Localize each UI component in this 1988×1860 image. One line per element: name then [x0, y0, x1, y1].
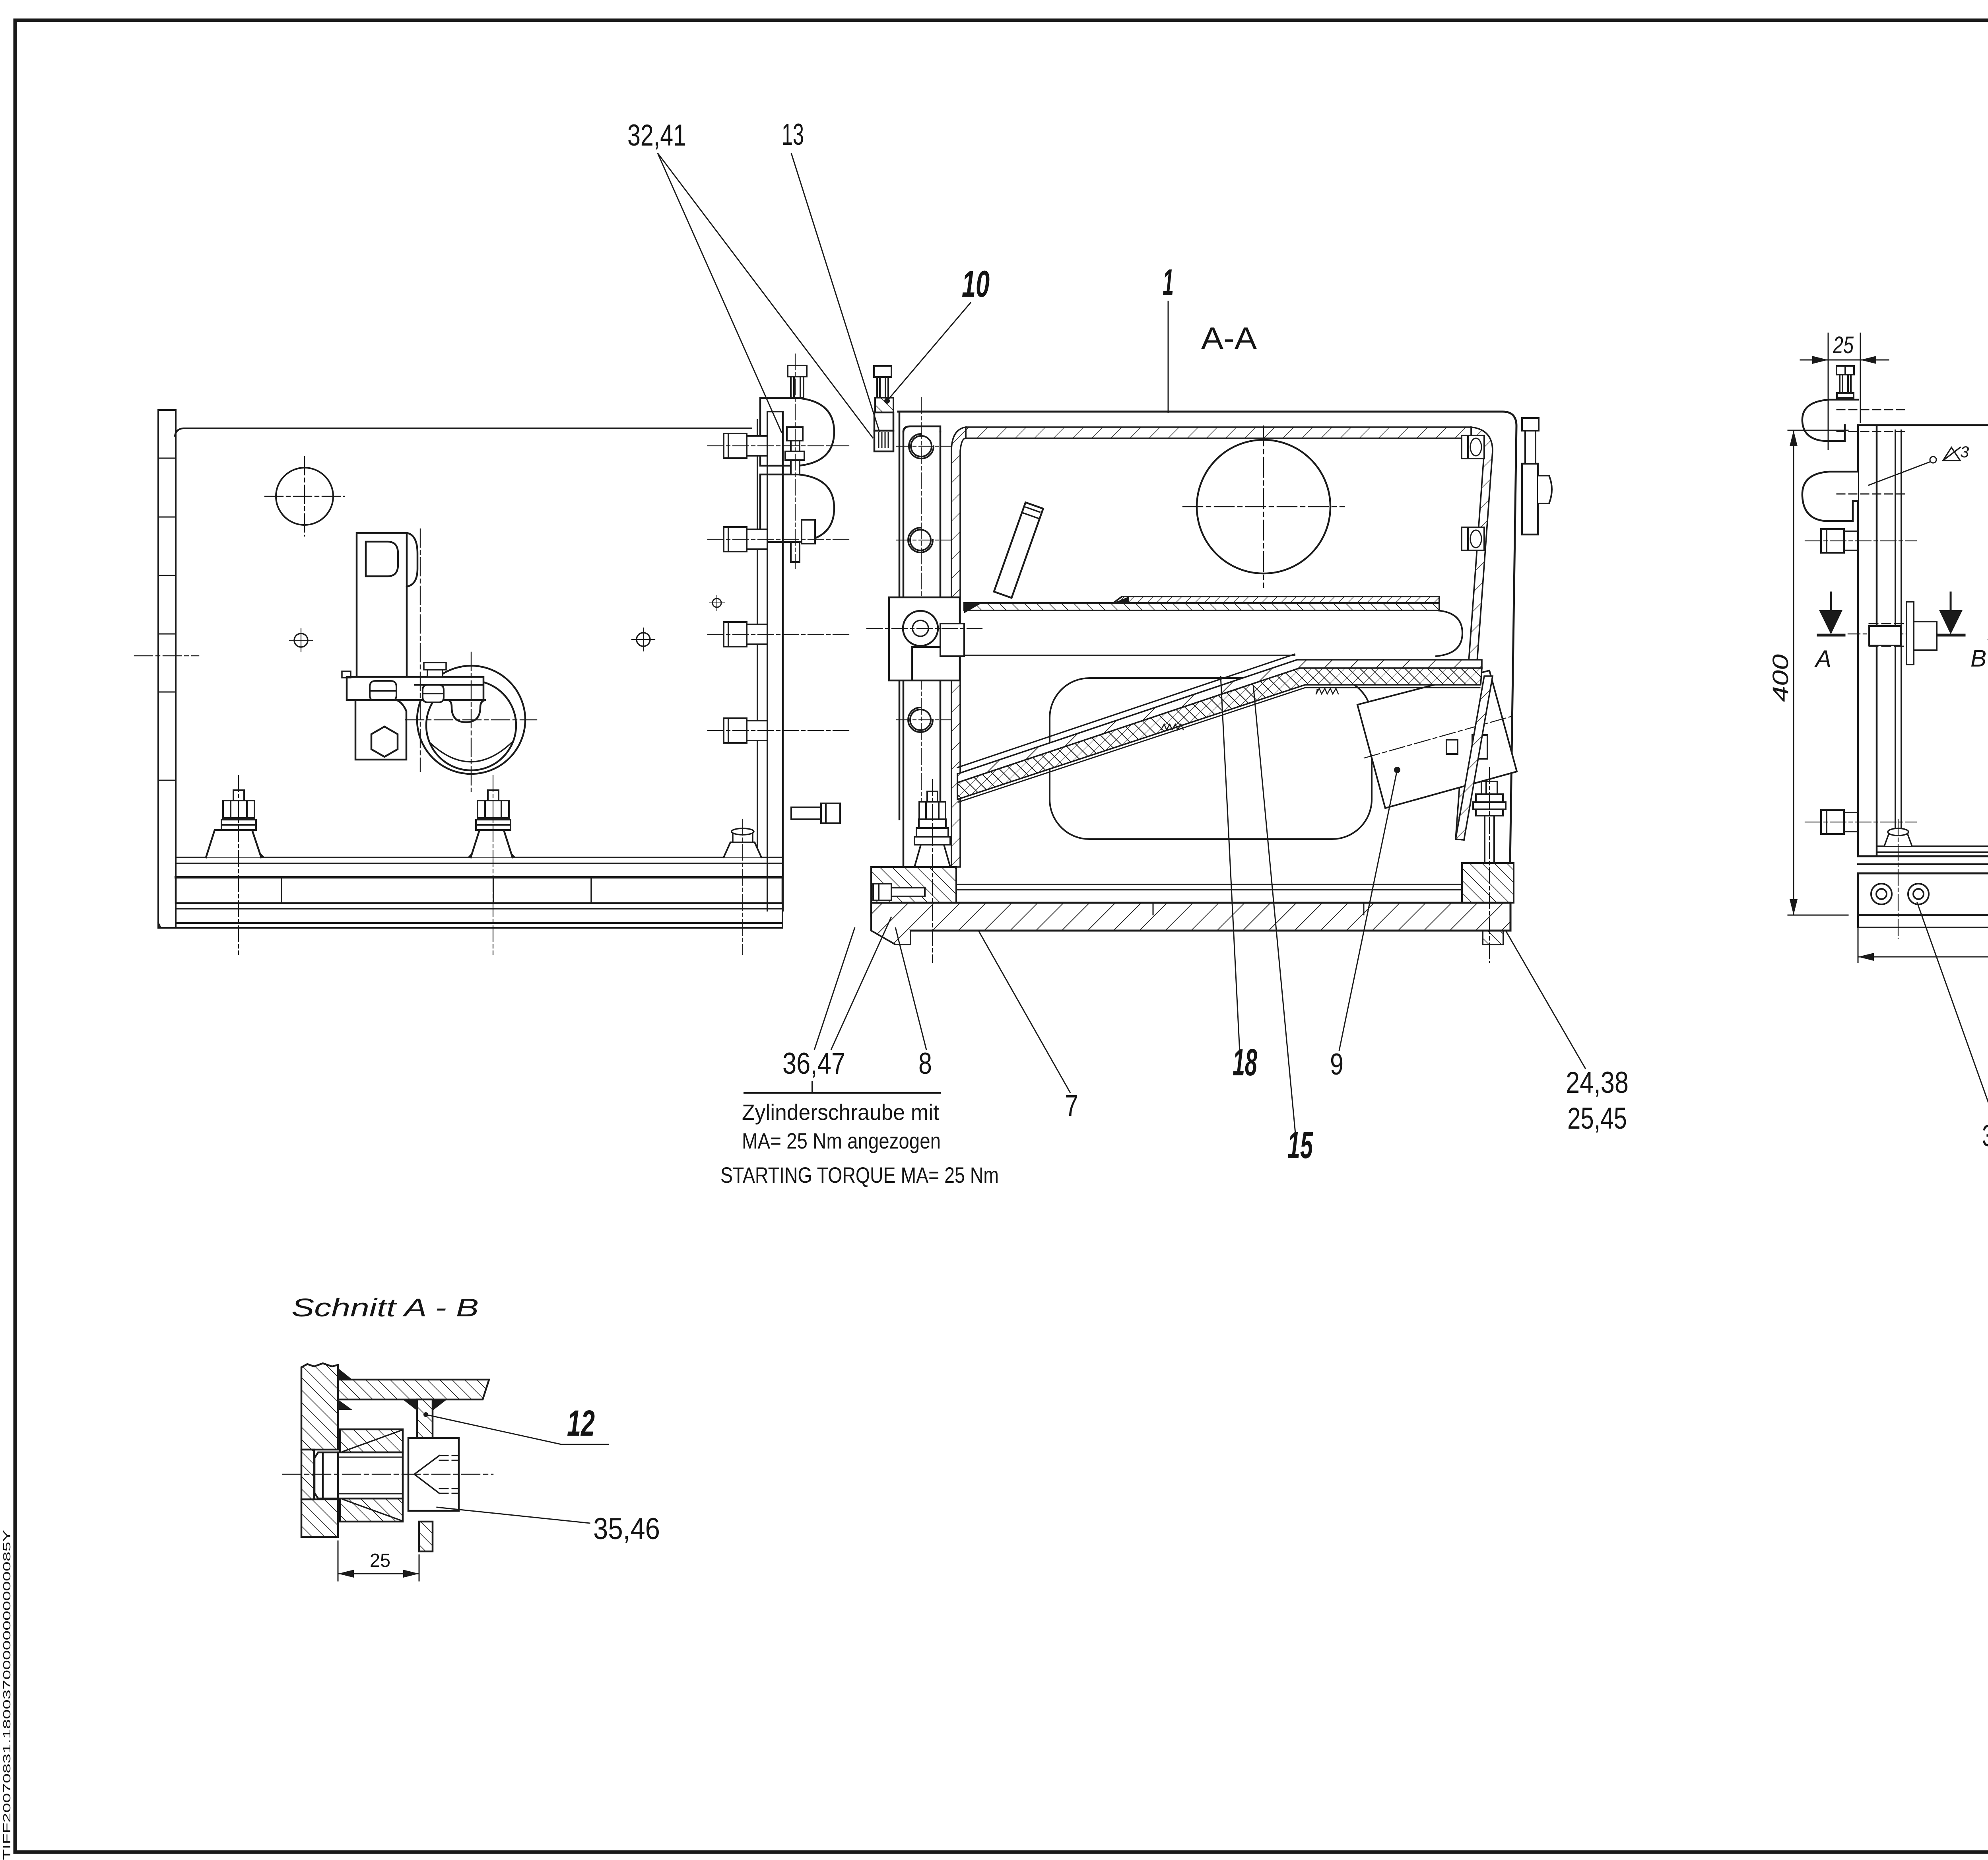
svg-text:STARTING TORQUE MA= 25 Nm: STARTING TORQUE MA= 25 Nm: [720, 1162, 999, 1188]
svg-text:25: 25: [1833, 332, 1854, 358]
svg-text:36,47: 36,47: [782, 1047, 845, 1081]
svg-text:Schnitt A - B: Schnitt A - B: [291, 1293, 479, 1322]
svg-text:8: 8: [918, 1047, 932, 1081]
svg-text:18: 18: [1233, 1041, 1257, 1084]
svg-text:400: 400: [1768, 654, 1793, 702]
svg-text:35,46: 35,46: [593, 1512, 660, 1546]
svg-text:MA= 25 Nm angezogen: MA= 25 Nm angezogen: [742, 1128, 941, 1153]
svg-text:9: 9: [1330, 1048, 1343, 1081]
svg-text:3: 3: [1960, 443, 1969, 461]
svg-text:10: 10: [962, 263, 990, 305]
svg-text:A-A: A-A: [1201, 321, 1257, 356]
svg-text:32,41: 32,41: [627, 119, 686, 152]
svg-text:25: 25: [370, 1550, 390, 1571]
svg-text:B: B: [1971, 645, 1986, 672]
svg-text:12: 12: [567, 1403, 595, 1444]
svg-text:TIFF20070831.18003700000000000: TIFF20070831.18003700000000000085Y: [1, 1530, 13, 1860]
svg-text:Zylinderschraube mit: Zylinderschraube mit: [742, 1100, 939, 1125]
svg-text:25,45: 25,45: [1567, 1102, 1627, 1135]
svg-text:13: 13: [782, 118, 804, 152]
svg-text:A: A: [1814, 645, 1831, 672]
svg-text:24,38: 24,38: [1566, 1066, 1629, 1100]
svg-text:1: 1: [1163, 261, 1174, 303]
svg-text:15: 15: [1287, 1124, 1313, 1166]
svg-text:7: 7: [1065, 1089, 1078, 1123]
svg-text:37,45: 37,45: [1982, 1119, 1988, 1153]
